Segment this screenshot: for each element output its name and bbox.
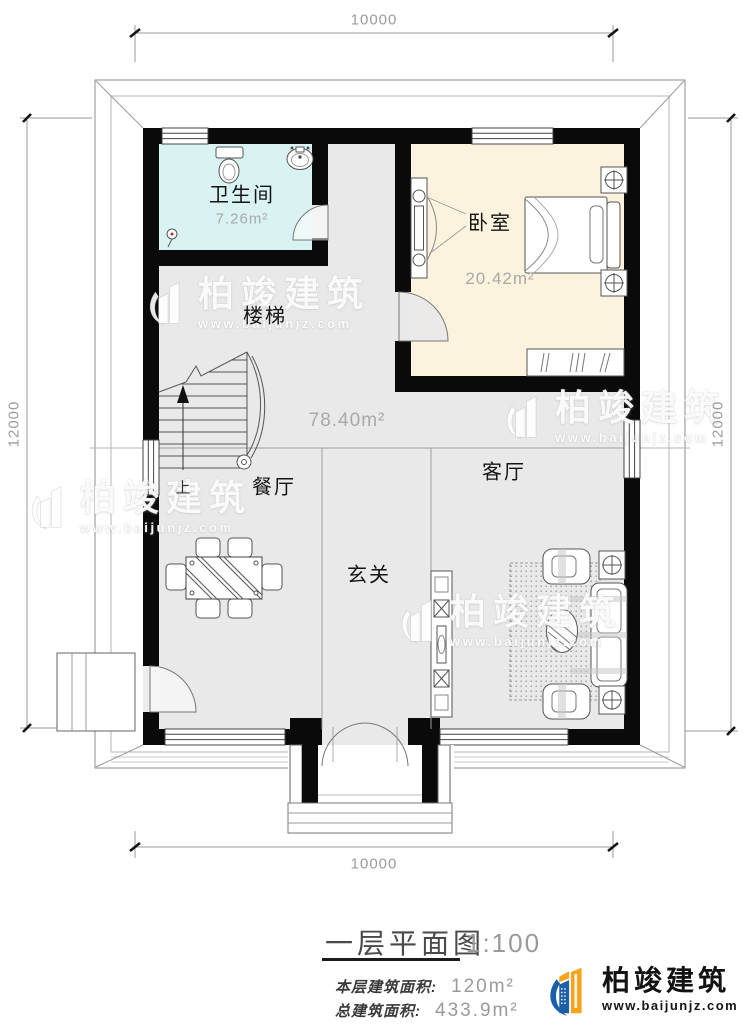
floor-area-line: 本层建筑面积: 120m² bbox=[335, 976, 515, 998]
area-label-bedroom: 20.42m² bbox=[465, 269, 534, 289]
plan-scale: 1:100 bbox=[466, 928, 541, 959]
dim-bottom: 10000 bbox=[351, 856, 398, 873]
brand-name: 柏竣建筑 bbox=[602, 967, 738, 995]
entrance-steps bbox=[288, 803, 452, 833]
room-label-bathroom: 卫生间 bbox=[209, 179, 275, 208]
area-label-hall: 78.40m² bbox=[309, 410, 386, 432]
side-stoop bbox=[57, 653, 135, 731]
room-label-bedroom: 卧室 bbox=[468, 207, 512, 236]
title-underline bbox=[322, 958, 460, 961]
room-label-stairs: 楼梯 bbox=[243, 300, 287, 329]
brand-url: www.baijunjz.com bbox=[602, 998, 738, 1013]
stairs-up-label: 上 bbox=[175, 477, 190, 498]
dim-right: 12000 bbox=[710, 401, 727, 448]
tv-cabinet bbox=[431, 571, 452, 717]
total-area-line: 总建筑面积: 433.9m² bbox=[335, 1000, 519, 1022]
room-label-dining: 餐厅 bbox=[252, 471, 296, 500]
dining-chair bbox=[196, 599, 220, 618]
total-area-label: 总建筑面积: bbox=[335, 1000, 421, 1021]
floor-area-label: 本层建筑面积: bbox=[335, 976, 437, 997]
dining-chair bbox=[228, 599, 252, 618]
wardrobe bbox=[527, 349, 624, 376]
room-label-foyer: 玄关 bbox=[347, 559, 391, 588]
dining-chair bbox=[228, 538, 252, 557]
dining-chair bbox=[166, 564, 186, 590]
room-label-living: 客厅 bbox=[482, 456, 526, 485]
floor-plan-drawing bbox=[0, 0, 750, 1030]
plan-title: 一层平面图 bbox=[325, 922, 485, 962]
entrance-porch bbox=[288, 745, 454, 833]
dining-chair bbox=[196, 538, 220, 557]
dining-chair bbox=[262, 564, 282, 590]
pillow bbox=[590, 206, 603, 263]
bed bbox=[525, 197, 620, 273]
headboard bbox=[607, 202, 620, 268]
dim-top: 10000 bbox=[351, 12, 398, 29]
area-label-bathroom: 7.26m² bbox=[216, 211, 269, 228]
brand-logo: 柏竣建筑 www.baijunjz.com bbox=[545, 961, 738, 1019]
brand-logo-icon bbox=[545, 961, 595, 1019]
floor-area-value: 120m² bbox=[451, 976, 515, 998]
floor-plan-canvas: 柏竣建筑 www.baijunjz.com 柏竣建筑 www.baijunjz.… bbox=[0, 0, 750, 1030]
dim-left: 12000 bbox=[6, 401, 23, 448]
total-area-value: 433.9m² bbox=[435, 1000, 519, 1022]
